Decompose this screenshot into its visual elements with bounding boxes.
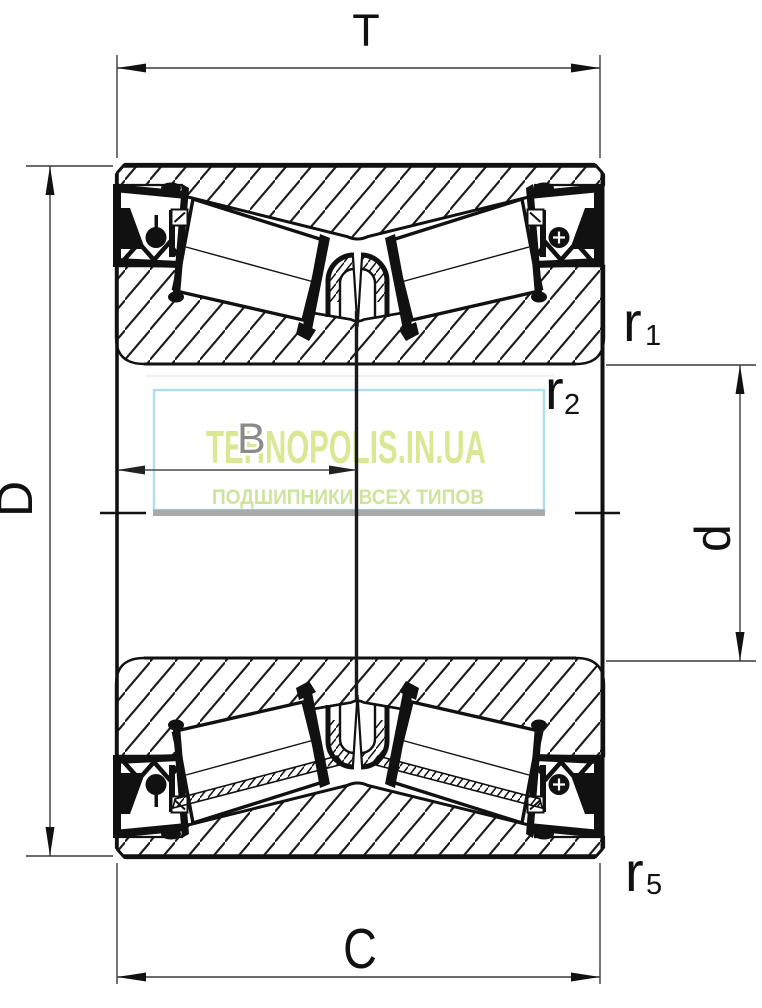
svg-text:r: r bbox=[545, 358, 564, 421]
svg-text:T: T bbox=[352, 5, 380, 56]
svg-text:C: C bbox=[343, 918, 377, 981]
svg-text:5: 5 bbox=[646, 869, 662, 901]
svg-text:D: D bbox=[0, 481, 43, 517]
svg-text:B: B bbox=[237, 415, 266, 463]
svg-text:1: 1 bbox=[645, 320, 661, 352]
svg-text:r: r bbox=[623, 290, 642, 353]
svg-text:d: d bbox=[685, 524, 741, 552]
svg-text:r: r bbox=[625, 840, 644, 903]
svg-text:2: 2 bbox=[564, 389, 580, 421]
svg-text:ПОДШИПНИКИ ВСЕХ ТИПОВ: ПОДШИПНИКИ ВСЕХ ТИПОВ bbox=[212, 486, 484, 509]
